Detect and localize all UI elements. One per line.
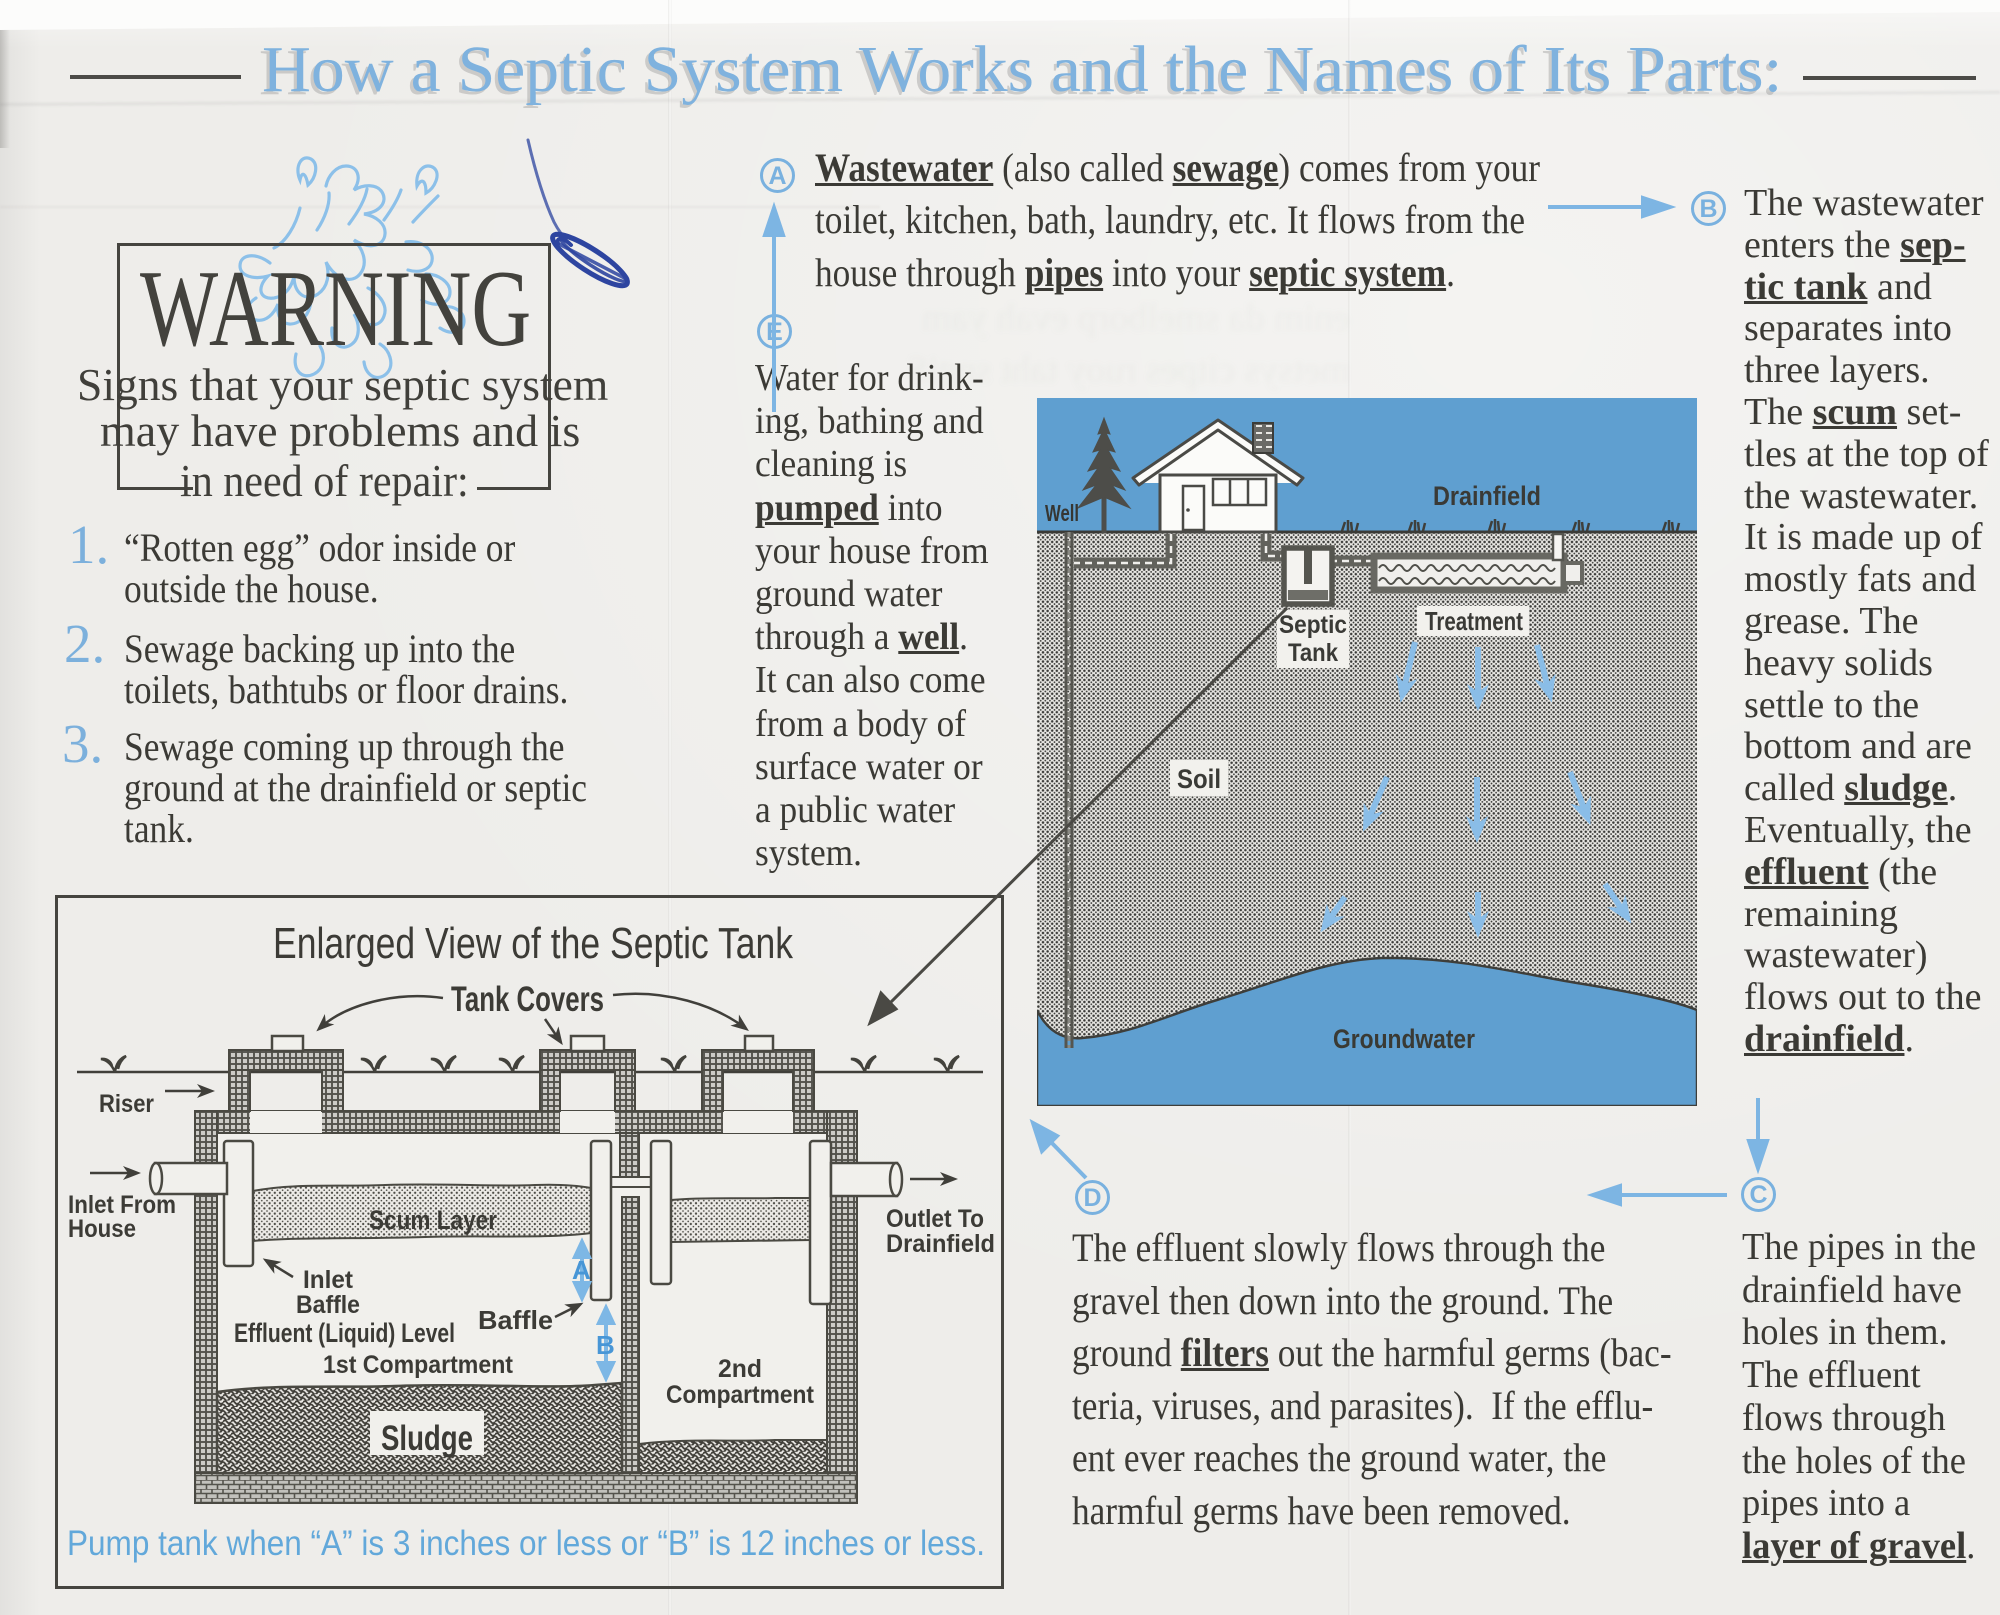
svg-text:Effluent (Liquid) Level: Effluent (Liquid) Level [234,1318,455,1348]
svg-text:B: B [596,1330,615,1360]
svg-text:Tank: Tank [1288,639,1338,667]
svg-text:Drainfield: Drainfield [1433,481,1541,511]
svg-text:1st Compartment: 1st Compartment [323,1351,514,1379]
svg-text:Outlet To: Outlet To [886,1205,984,1233]
svg-text:Treatment: Treatment [1425,606,1523,636]
svg-text:A: A [572,1255,591,1285]
svg-text:Enlarged View of the Septic Ta: Enlarged View of the Septic Tank [273,919,794,968]
svg-text:Baffle: Baffle [478,1305,553,1335]
svg-text:Septic: Septic [1279,611,1347,639]
svg-text:Well: Well [1045,500,1079,526]
svg-text:Drainfield: Drainfield [886,1230,995,1258]
svg-text:2nd: 2nd [718,1355,762,1383]
svg-text:Groundwater: Groundwater [1333,1024,1475,1054]
svg-text:Baffle: Baffle [296,1291,360,1319]
svg-text:Tank Covers: Tank Covers [451,980,604,1019]
svg-text:Scum Layer: Scum Layer [369,1205,497,1235]
svg-text:Riser: Riser [99,1090,154,1118]
svg-text:House: House [68,1215,136,1243]
svg-text:Sludge: Sludge [381,1419,473,1458]
svg-text:Soil: Soil [1177,764,1221,794]
svg-text:Inlet: Inlet [303,1266,354,1294]
svg-text:Pump tank when “A” is 3 inches: Pump tank when “A” is 3 inches or less o… [67,1524,985,1563]
svg-text:Compartment: Compartment [666,1381,815,1409]
